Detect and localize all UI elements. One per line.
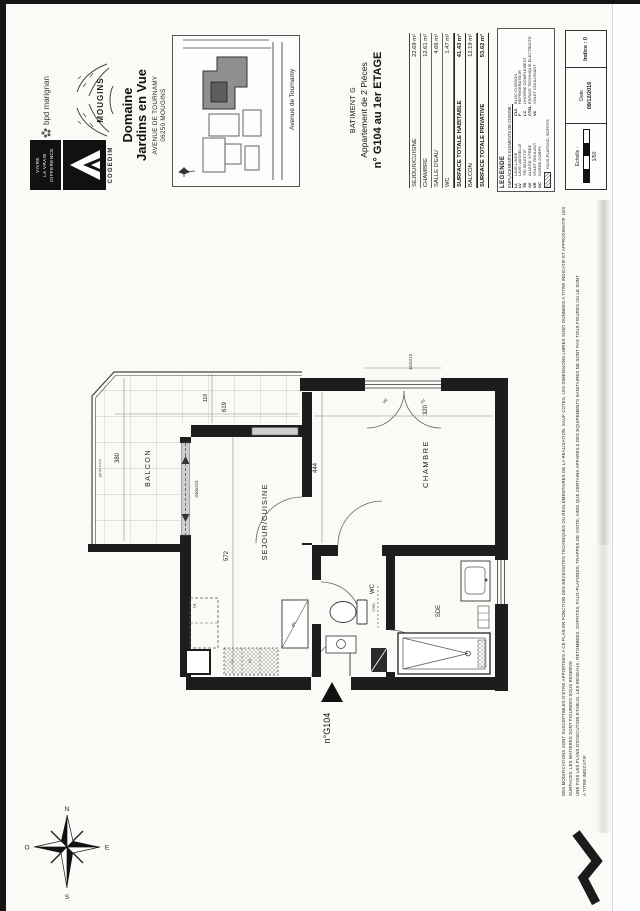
scan-border-left	[0, 0, 6, 911]
chambre-window-dim: 140x215	[408, 353, 413, 370]
dim-444: 444	[313, 462, 319, 473]
chambre-door2-opening	[338, 545, 382, 556]
tb-label: TB	[192, 603, 197, 608]
balcony-floor	[94, 374, 300, 543]
east-wall	[495, 378, 508, 691]
compass-west: O	[24, 845, 29, 852]
compass-north: N	[65, 806, 70, 813]
dim-118: 118	[203, 394, 209, 402]
chambre-label: CHAMBRE	[421, 440, 430, 488]
dim-320: 320	[423, 404, 429, 415]
handbasin-icon	[326, 636, 356, 653]
scan-fold-artifact	[560, 820, 620, 911]
pillar	[186, 650, 210, 674]
dim-619: 619	[222, 401, 228, 412]
dim-380: 380	[115, 452, 121, 463]
technical-shaft	[371, 648, 387, 672]
sde-window	[495, 560, 508, 604]
unit-number-label: n°G104	[322, 713, 332, 744]
lv-label: LV	[248, 658, 252, 663]
garde-corps-label: garde-corps	[98, 458, 102, 477]
sde-door-opening	[386, 630, 395, 672]
ll-label: LL	[230, 659, 234, 663]
chambre-door-opening	[302, 497, 312, 543]
sejour-label: SEJOUR/CUISINE	[260, 484, 269, 561]
sejour-fixed-window	[252, 428, 298, 436]
balcony-end-wall	[88, 544, 182, 552]
shower-icon	[398, 633, 490, 674]
chambre-door2-arc	[338, 501, 382, 545]
scanned-floorplan-page: VIVRE LA VRAIE DIFFERENCE COGEDIM bpd ma…	[0, 0, 640, 911]
scan-streak	[596, 200, 611, 545]
sheet-edge-line	[612, 0, 613, 911]
scan-streak	[596, 545, 611, 833]
dim-572: 572	[224, 550, 230, 561]
bay-window-dim: 340x215	[194, 480, 199, 498]
compass-south: S	[65, 894, 70, 901]
chambre-window: VR AV	[365, 378, 441, 428]
toilet-icon	[330, 600, 367, 624]
compass-east: E	[105, 845, 110, 852]
wc-label: WC	[370, 583, 376, 594]
page-right-margin	[613, 0, 640, 911]
av-tag: AV	[419, 397, 426, 404]
wc-door-opening	[312, 580, 321, 624]
ctel-label: CTEL	[372, 602, 376, 611]
floor-plan-drawing: VR AV 140x215 340x215	[0, 0, 640, 911]
sde-label: SDE	[436, 605, 442, 617]
placard-label: PL	[291, 621, 296, 627]
scan-border-top	[0, 0, 640, 4]
vr-tag: VR	[381, 397, 389, 405]
towel-radiator-icon	[478, 606, 489, 628]
balcon-label: BALCON	[145, 449, 152, 487]
bay-window	[180, 443, 191, 535]
compass-rose-icon: N E S O	[22, 802, 114, 902]
washbasin-icon	[461, 561, 490, 601]
